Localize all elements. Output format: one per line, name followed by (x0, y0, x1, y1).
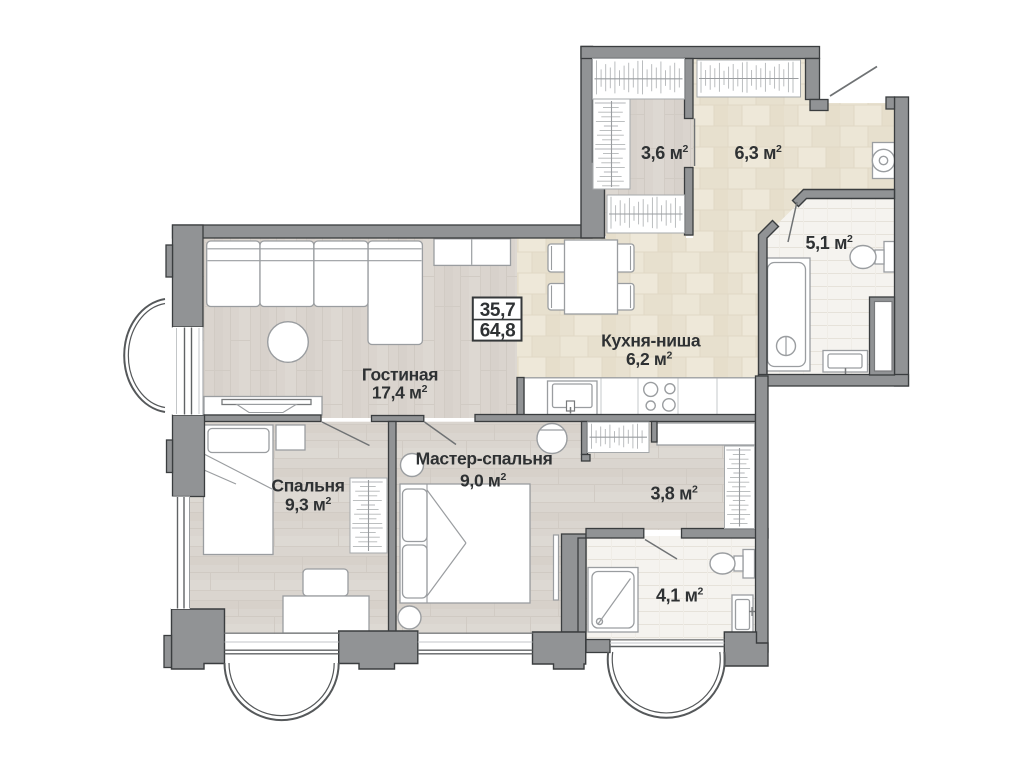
svg-text:4,1 м2: 4,1 м2 (656, 586, 704, 606)
svg-text:Спальня: Спальня (271, 476, 344, 496)
svg-text:9,0 м2: 9,0 м2 (460, 471, 506, 491)
svg-text:6,2 м2: 6,2 м2 (626, 349, 672, 369)
svg-text:9,3 м2: 9,3 м2 (285, 495, 331, 515)
svg-text:Кухня-ниша: Кухня-ниша (601, 331, 701, 351)
svg-text:6,3 м2: 6,3 м2 (734, 143, 782, 163)
svg-text:17,4 м2: 17,4 м2 (372, 383, 428, 403)
svg-text:5,1 м2: 5,1 м2 (805, 233, 853, 253)
svg-text:3,8 м2: 3,8 м2 (650, 484, 698, 504)
svg-text:64,8: 64,8 (480, 321, 516, 342)
svg-text:3,6 м2: 3,6 м2 (641, 143, 689, 163)
svg-text:Мастер-спальня: Мастер-спальня (416, 449, 553, 469)
svg-text:35,7: 35,7 (480, 300, 516, 321)
svg-text:Гостиная: Гостиная (362, 365, 438, 385)
